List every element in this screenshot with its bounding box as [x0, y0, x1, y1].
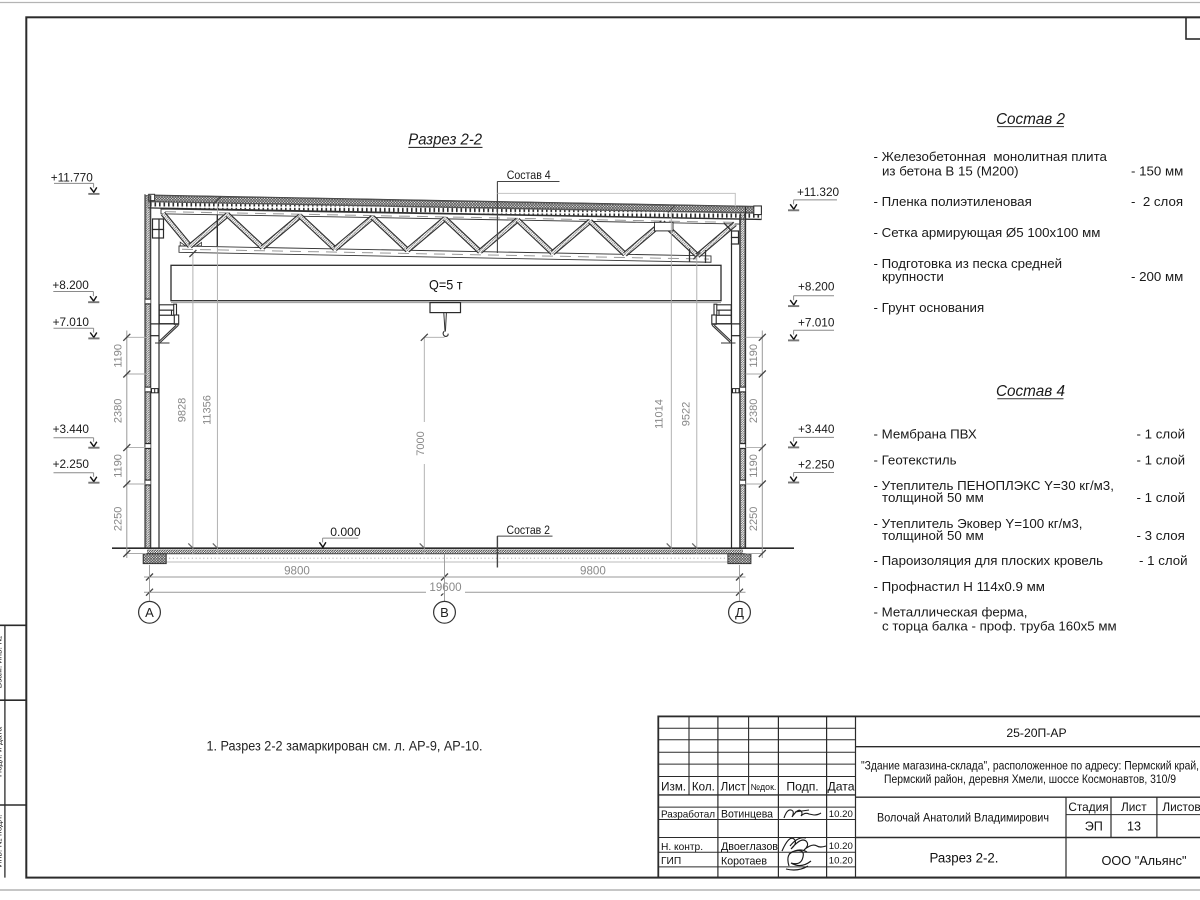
svg-text:10.20: 10.20 [829, 856, 853, 867]
svg-text:Состав 2: Состав 2 [507, 523, 551, 537]
svg-text:В: В [440, 605, 449, 620]
svg-text:+8.200: +8.200 [52, 278, 89, 292]
svg-text:2380: 2380 [112, 399, 124, 423]
svg-text:- 1 слой: - 1 слой [1137, 426, 1186, 441]
svg-text:1190: 1190 [112, 344, 124, 368]
svg-text:Дата: Дата [828, 780, 855, 794]
svg-text:- Пароизоляция для плоских кро: - Пароизоляция для плоских кровель [874, 553, 1104, 568]
svg-text:10.20: 10.20 [829, 809, 853, 820]
svg-text:Лист: Лист [721, 780, 747, 793]
svg-text:Подп. и дата: Подп. и дата [0, 727, 3, 777]
svg-text:+2.250: +2.250 [53, 457, 90, 471]
svg-text:Разрез 2-2.: Разрез 2-2. [930, 851, 999, 867]
svg-text:Q=5 т: Q=5 т [429, 277, 463, 292]
svg-text:7000: 7000 [415, 431, 427, 455]
svg-text:Д: Д [735, 605, 744, 620]
svg-text:- Профнастил Н 114х0.9 мм: - Профнастил Н 114х0.9 мм [874, 579, 1045, 594]
svg-text:+8.200: +8.200 [798, 279, 835, 293]
svg-text:- Металлическая ферма,: - Металлическая ферма, [874, 605, 1028, 620]
svg-text:+11.770: +11.770 [51, 170, 94, 184]
svg-text:Стадия: Стадия [1068, 800, 1108, 814]
svg-text:- 1 слой: - 1 слой [1139, 553, 1188, 568]
svg-text:Состав 4: Состав 4 [507, 168, 551, 182]
svg-text:1. Разрез 2-2 замаркирован см.: 1. Разрез 2-2 замаркирован см. л. АР-9, … [207, 739, 483, 754]
svg-text:2250: 2250 [112, 507, 124, 531]
svg-text:11356: 11356 [202, 395, 214, 425]
svg-text:Волочай Анатолий Владимирович: Волочай Анатолий Владимирович [877, 811, 1049, 824]
svg-text:9828: 9828 [176, 398, 188, 422]
svg-text:- 3 слоя: - 3 слоя [1137, 528, 1185, 543]
svg-text:Состав 2: Состав 2 [996, 111, 1066, 128]
svg-text:- Мембрана ПВХ: - Мембрана ПВХ [874, 426, 977, 441]
svg-text:Подп.: Подп. [786, 780, 818, 794]
svg-text:- Сетка армирующая Ø5 100х100: - Сетка армирующая Ø5 100х100 мм [874, 225, 1101, 240]
svg-text:А: А [145, 605, 154, 620]
svg-text:19600: 19600 [429, 581, 461, 594]
svg-text:- Геотекстиль: - Геотекстиль [874, 452, 957, 467]
svg-text:- 2 слоя: - 2 слоя [1131, 194, 1183, 209]
svg-text:9800: 9800 [284, 565, 310, 578]
svg-text:Н. контр.: Н. контр. [661, 842, 703, 853]
svg-text:9522: 9522 [681, 402, 693, 426]
svg-text:- Железобетонная монолитная п: - Железобетонная монолитная плита [874, 149, 1108, 164]
svg-text:+3.440: +3.440 [798, 422, 835, 436]
svg-text:ГИП: ГИП [661, 856, 681, 867]
svg-text:- 1 слой: - 1 слой [1137, 452, 1186, 467]
svg-text:Кол.: Кол. [692, 780, 715, 793]
svg-text:- 1 слой: - 1 слой [1137, 490, 1186, 505]
svg-text:+11.320: +11.320 [797, 185, 840, 199]
svg-text:Листов: Листов [1162, 800, 1200, 814]
svg-text:+2.250: +2.250 [798, 457, 835, 471]
svg-text:1190: 1190 [748, 344, 760, 368]
svg-text:0.000: 0.000 [330, 525, 361, 539]
svg-text:Разработал: Разработал [661, 808, 715, 820]
svg-text:25-20П-АР: 25-20П-АР [1006, 726, 1066, 740]
svg-text:Двоеглазов: Двоеглазов [721, 841, 778, 853]
svg-text:- Грунт основания: - Грунт основания [874, 300, 985, 315]
svg-text:Изм.: Изм. [661, 780, 686, 793]
svg-text:Взам. инв. №: Взам. инв. № [0, 636, 3, 689]
svg-text:- 150 мм: - 150 мм [1131, 163, 1183, 178]
svg-text:+7.010: +7.010 [798, 315, 835, 329]
svg-text:Коротаев: Коротаев [721, 855, 767, 867]
svg-text:с торца балка - проф. труба 16: с торца балка - проф. труба 160х5 мм [882, 618, 1117, 633]
svg-text:+7.010: +7.010 [53, 315, 90, 329]
svg-text:11014: 11014 [654, 399, 666, 429]
svg-text:2380: 2380 [748, 399, 760, 423]
svg-text:2250: 2250 [748, 507, 760, 531]
svg-text:Состав 4: Состав 4 [996, 383, 1065, 400]
svg-text:ЭП: ЭП [1085, 819, 1103, 833]
svg-text:- Пленка полиэтиленовая: - Пленка полиэтиленовая [874, 194, 1032, 209]
svg-text:10.20: 10.20 [829, 841, 853, 852]
svg-text:Пермский район, деревня Хмели,: Пермский район, деревня Хмели, шоссе Кос… [884, 772, 1176, 786]
svg-text:+3.440: +3.440 [53, 422, 90, 436]
svg-text:Разрез 2-2: Разрез 2-2 [408, 131, 482, 148]
svg-text:9800: 9800 [580, 565, 606, 578]
svg-text:из бетона В 15 (М200): из бетона В 15 (М200) [882, 163, 1019, 178]
svg-text:1190: 1190 [748, 454, 760, 478]
svg-text:13: 13 [1127, 819, 1141, 833]
svg-text:толщиной 50 мм: толщиной 50 мм [882, 490, 984, 505]
svg-text:- 200 мм: - 200 мм [1131, 269, 1183, 284]
svg-text:№док.: №док. [751, 782, 777, 792]
svg-text:Лист: Лист [1121, 800, 1147, 814]
svg-text:Вотинцева: Вотинцева [721, 809, 773, 821]
svg-text:1190: 1190 [112, 454, 124, 478]
svg-text:Инв. № подл.: Инв. № подл. [0, 815, 3, 868]
svg-text:толщиной 50 мм: толщиной 50 мм [882, 528, 984, 543]
svg-text:крупности: крупности [882, 269, 944, 284]
svg-text:ООО "Альянс": ООО "Альянс" [1102, 853, 1187, 868]
svg-text:"Здание магазина-склада", расп: "Здание магазина-склада", расположенное … [861, 759, 1199, 773]
